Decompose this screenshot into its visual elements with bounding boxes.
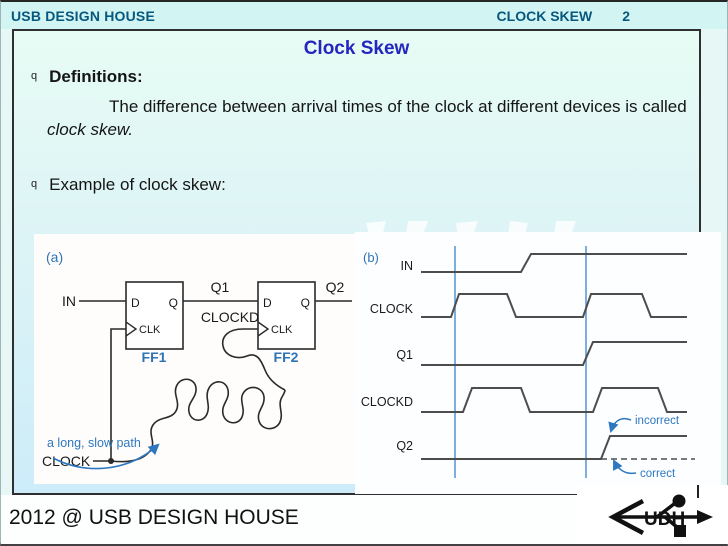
- q1-label: Q1: [211, 279, 230, 295]
- slow-path-note: a long, slow path: [47, 436, 141, 450]
- slide-title: Clock Skew: [14, 38, 699, 60]
- figure-b-timing: (b) IN CLOCK Q1 CLOCKD Q2: [355, 232, 721, 494]
- definition-paragraph: The difference between arrival times of …: [47, 95, 695, 141]
- ff2-d-pin: D: [263, 296, 272, 310]
- waveform-q2-incorrect: [421, 436, 687, 459]
- clock-label: CLOCK: [42, 453, 91, 469]
- signal-label-q2: Q2: [396, 439, 413, 453]
- ff1-d-pin: D: [131, 296, 140, 310]
- definition-emphasis-text: clock skew.: [47, 120, 133, 139]
- logo-arrowhead-icon: [697, 510, 713, 524]
- timing-diagram: (b) IN CLOCK Q1 CLOCKD Q2: [355, 232, 721, 494]
- signal-label-clock: CLOCK: [370, 302, 414, 316]
- flip-flop-2: D Q CLK FF2: [258, 282, 315, 365]
- header-page-number: 2: [622, 8, 630, 24]
- figure-b-tag: (b): [363, 250, 379, 265]
- logo-panel: UDH: [577, 485, 728, 544]
- ff2-q-pin: Q: [301, 296, 310, 310]
- signal-label-q1: Q1: [396, 348, 413, 362]
- waveform-clock: [421, 294, 687, 317]
- ff1-label: FF1: [142, 349, 167, 365]
- bullet-definitions: qDefinitions:: [31, 67, 143, 87]
- slide-content-box: Clock Skew qDefinitions: The difference …: [12, 29, 701, 495]
- circuit-diagram: (a) IN D Q CLK FF1 Q1: [34, 234, 356, 484]
- header-right-group: CLOCK SKEW 2: [497, 8, 727, 24]
- waveform-in: [421, 254, 687, 272]
- incorrect-arrow: [611, 419, 631, 431]
- in-label: IN: [62, 293, 76, 309]
- signal-label-in: IN: [401, 259, 414, 273]
- logo-monogram: UDH: [644, 509, 685, 530]
- waveform-clockd: [421, 388, 687, 412]
- correct-arrow: [614, 461, 636, 473]
- correct-note: correct: [640, 468, 676, 480]
- bullet-marker: q: [31, 178, 37, 190]
- clockd-label: CLOCKD: [201, 309, 259, 325]
- figure-a-circuit: (a) IN D Q CLK FF1 Q1: [34, 234, 356, 484]
- logo-circle-node-icon: [673, 495, 686, 508]
- q2-label: Q2: [326, 279, 345, 295]
- ff1-q-pin: Q: [169, 296, 178, 310]
- header-company: USB DESIGN HOUSE: [1, 8, 155, 24]
- header-bar: USB DESIGN HOUSE CLOCK SKEW 2: [1, 2, 727, 29]
- incorrect-note: incorrect: [635, 415, 680, 427]
- waveform-q1: [421, 342, 687, 365]
- ff2-clk-pin: CLK: [271, 324, 293, 336]
- header-section-title: CLOCK SKEW: [497, 8, 593, 24]
- usb-trident-logo: UDH: [605, 491, 727, 543]
- definition-body-text: The difference between arrival times of …: [109, 97, 687, 116]
- flip-flop-1: D Q CLK FF1: [126, 282, 183, 365]
- ff1-clk-pin: CLK: [139, 324, 161, 336]
- border-artifact: [697, 485, 699, 498]
- slide-page: USB DESIGN HOUSE CLOCK SKEW 2 Clock Skew…: [0, 0, 728, 546]
- signal-label-clockd: CLOCKD: [361, 395, 413, 409]
- bullet-example: qExample of clock skew:: [31, 175, 226, 195]
- definitions-heading: Definitions:: [49, 67, 143, 86]
- bullet-marker: q: [31, 70, 37, 82]
- ff2-label: FF2: [274, 349, 299, 365]
- example-heading: Example of clock skew:: [49, 175, 226, 194]
- figure-a-tag: (a): [46, 249, 63, 265]
